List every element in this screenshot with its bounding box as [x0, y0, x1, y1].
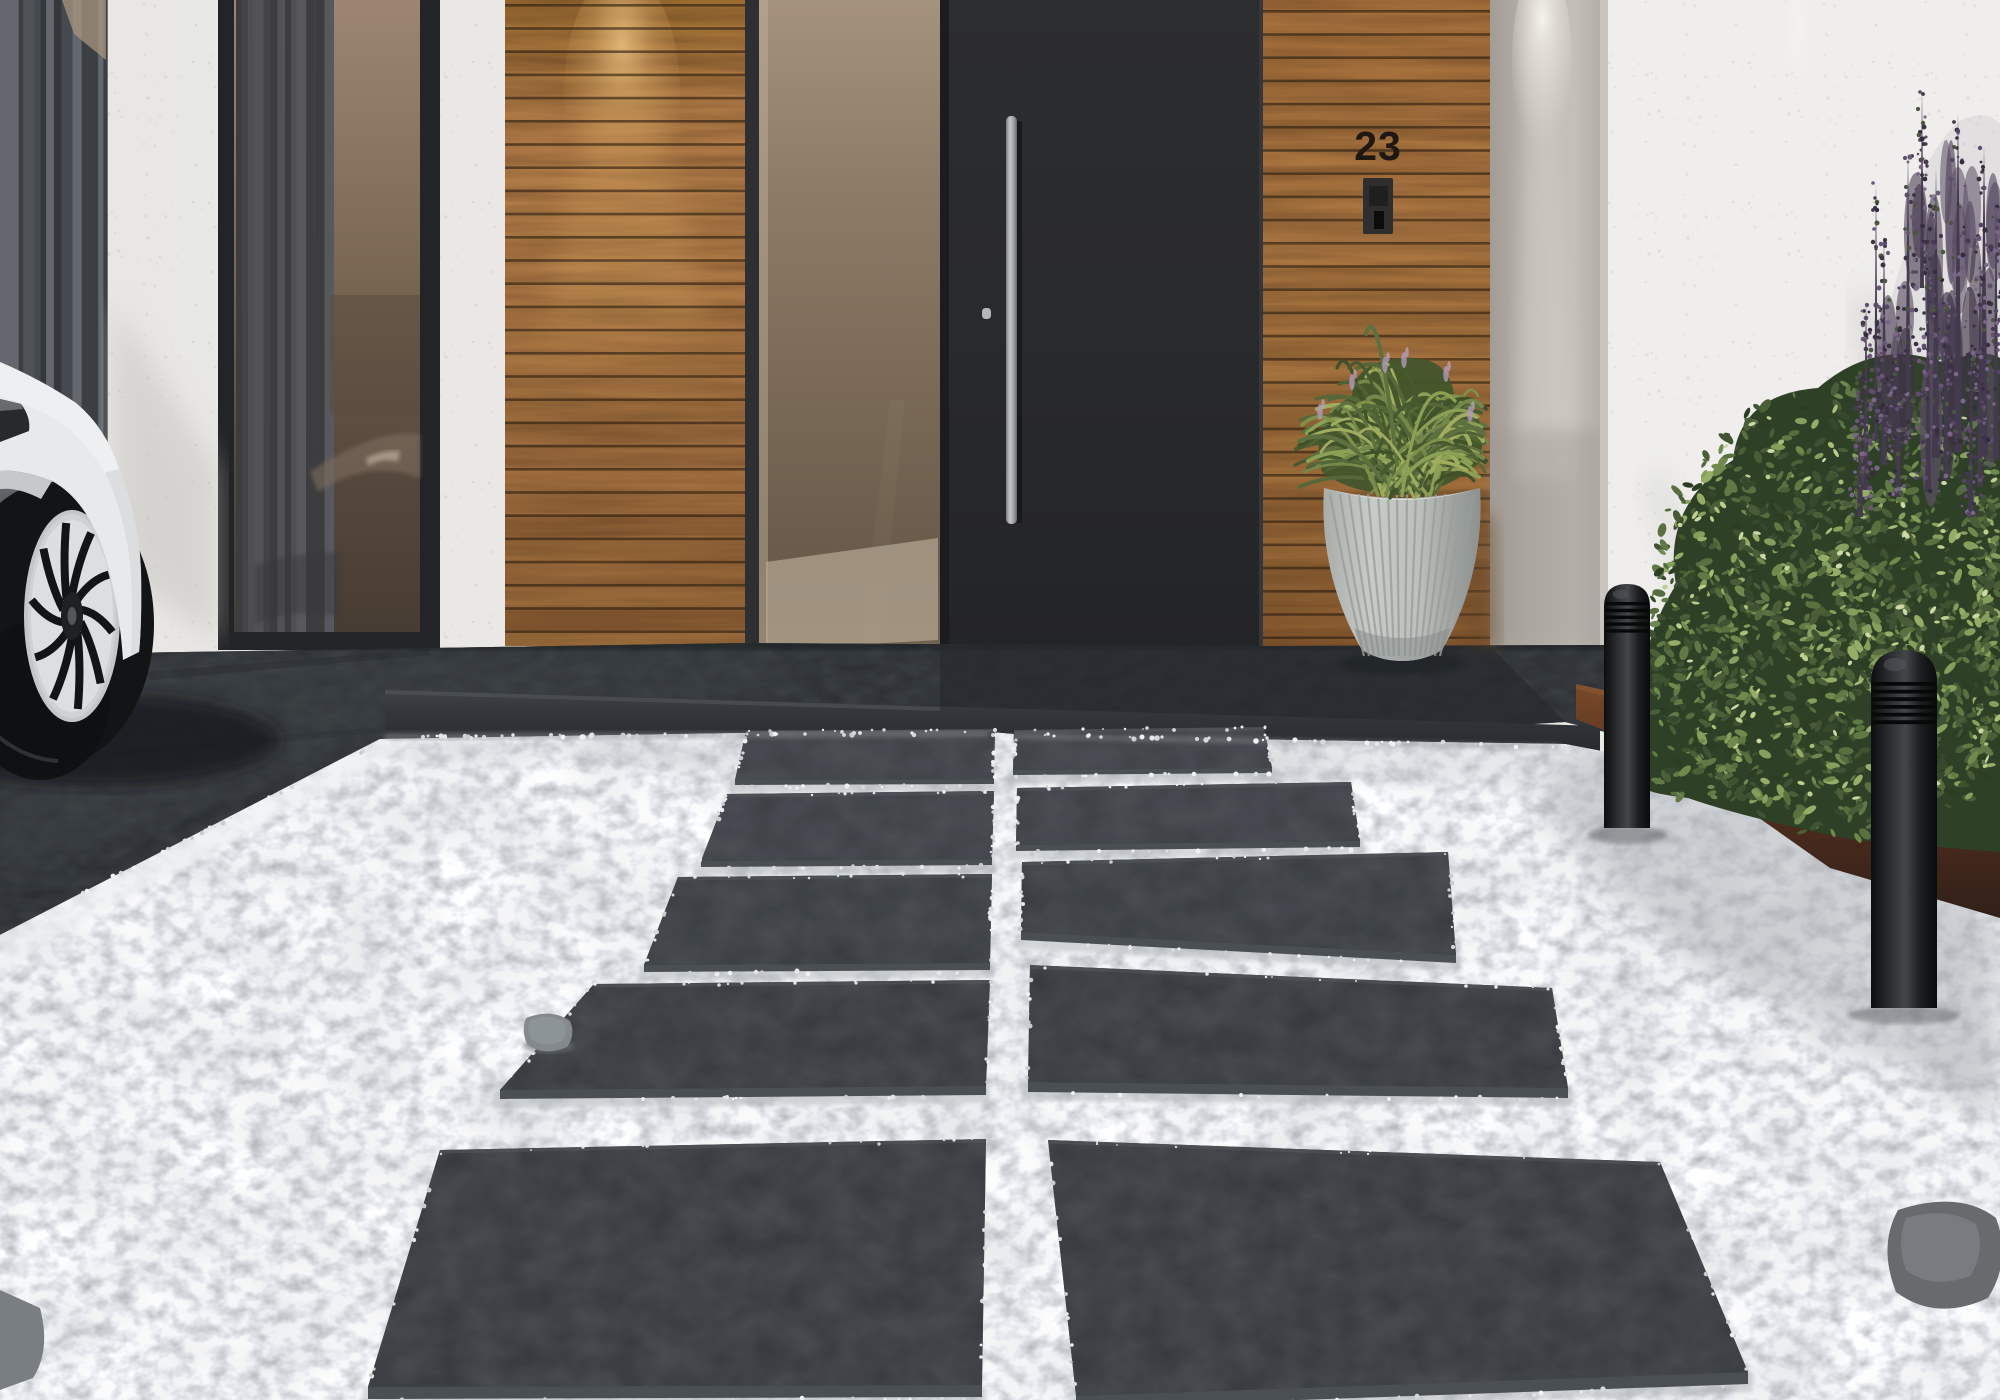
svg-text:23: 23	[1354, 123, 1402, 169]
